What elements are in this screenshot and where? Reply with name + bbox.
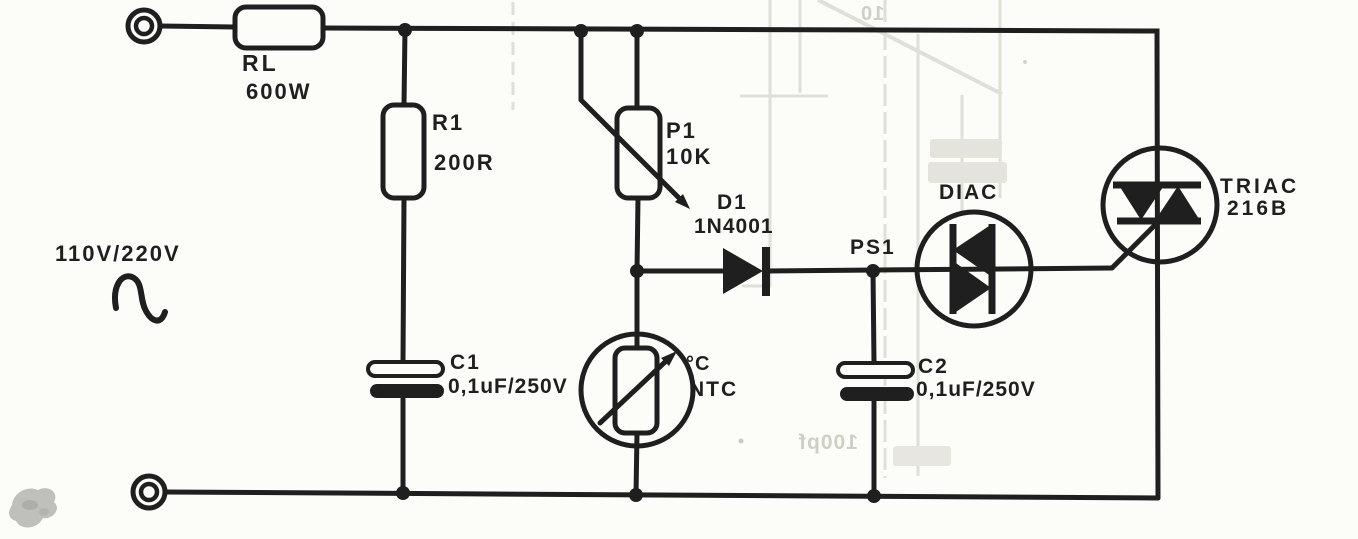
ac-sine-wave-icon xyxy=(115,276,165,320)
rl-ref-label: RL xyxy=(242,52,279,75)
r1-value-label: 200R xyxy=(434,152,495,174)
ink-smudge-artifact xyxy=(9,488,57,527)
input-terminal-bottom xyxy=(133,476,165,508)
capacitor-c1-symbol xyxy=(368,362,444,398)
source-voltage-label: 110V/220V xyxy=(55,243,181,265)
d1-value-label: 1N4001 xyxy=(694,216,774,237)
ghost-text-bottom: 100pf xyxy=(798,432,858,453)
ghost-text-top: 10 xyxy=(860,4,884,24)
diac-label: DIAC xyxy=(939,182,998,203)
rl-value-label: 600W xyxy=(246,81,311,103)
c2-value-label: 0,1uF/250V xyxy=(916,379,1036,400)
c1-ref-label: C1 xyxy=(450,352,481,373)
input-terminal-top xyxy=(128,10,160,42)
c2-ref-label: C2 xyxy=(918,356,949,377)
resistor-rl-body xyxy=(235,7,323,48)
c1-value-label: 0,1uF/250V xyxy=(448,376,568,397)
ntc-ref-label: NTC xyxy=(689,379,738,400)
triac-value-label: 216B xyxy=(1227,198,1289,219)
schematic-drawing xyxy=(0,0,1358,539)
ntc-temp-label: °C xyxy=(686,354,710,374)
triac-ref-label: TRIAC xyxy=(1220,176,1299,197)
triac-circle xyxy=(1103,148,1217,262)
capacitor-c2-symbol xyxy=(838,363,914,401)
d1-ref-label: D1 xyxy=(717,192,748,213)
diode-d1-symbol xyxy=(723,247,766,296)
p1-ref-label: P1 xyxy=(666,120,697,142)
circuit-diagram: 110V/220V RL 600W R1 200R C1 0,1uF/250V … xyxy=(0,0,1358,539)
r1-ref-label: R1 xyxy=(432,112,464,134)
resistor-r1-body xyxy=(383,105,424,198)
p1-value-label: 10K xyxy=(666,146,712,168)
ps1-label: PS1 xyxy=(850,237,896,258)
potentiometer-p1-body xyxy=(617,108,660,198)
